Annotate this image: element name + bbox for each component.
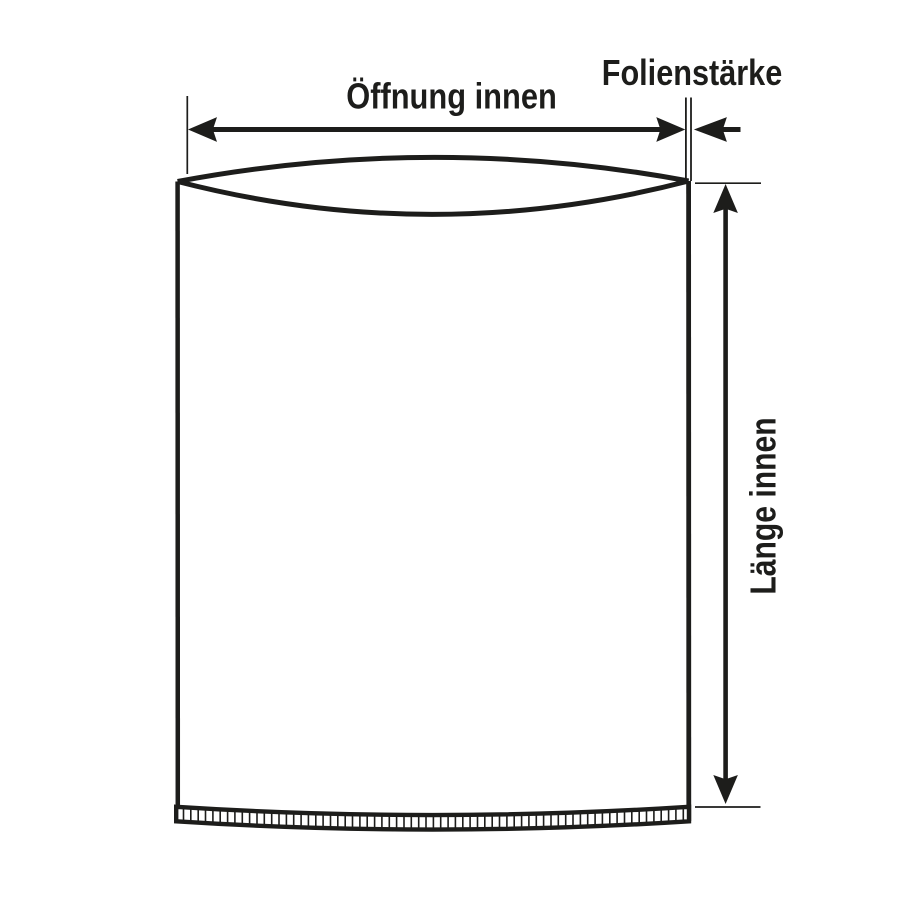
svg-text:Öffnung innen: Öffnung innen [346, 76, 557, 117]
svg-text:Folienstärke: Folienstärke [602, 53, 783, 94]
svg-text:Länge innen: Länge innen [744, 417, 784, 594]
